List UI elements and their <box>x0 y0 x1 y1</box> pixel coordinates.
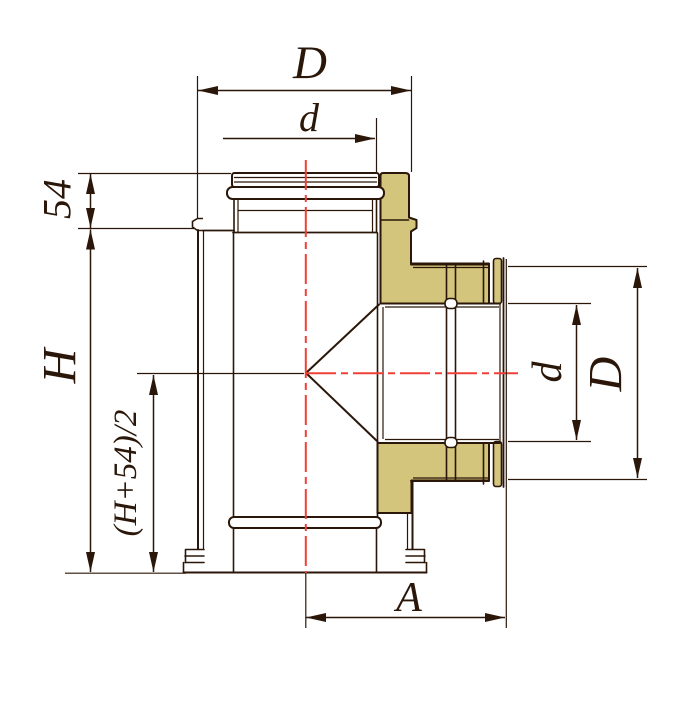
arrow-54-top <box>86 174 95 194</box>
label-branch-axis-height: (H+54)/2 <box>108 410 144 537</box>
chimney-tee-drawing: D d 54 H (H+54)/2 A d D <box>0 0 700 700</box>
label-collar-height: 54 <box>35 179 80 219</box>
insulation-upper <box>381 173 490 304</box>
arrow-H-bottom <box>86 552 95 572</box>
arrow-half-height-top <box>149 375 158 395</box>
branch-socket-bead-cap-bottom <box>445 438 457 448</box>
arrow-H-top <box>86 230 95 250</box>
label-branch-inner-diameter: d <box>525 361 571 383</box>
arrow-half-height-bottom <box>149 552 158 572</box>
casing-top-rim-left <box>193 219 204 231</box>
arrow-A-left <box>306 613 326 622</box>
arrow-D-right <box>391 86 411 95</box>
arrow-D-left <box>198 86 218 95</box>
arrow-d-right <box>355 134 375 143</box>
technical-drawing-canvas: D d 54 H (H+54)/2 A d D <box>0 0 700 700</box>
arrow-54-bottom <box>86 208 95 228</box>
label-inner-diameter-top: d <box>299 95 320 140</box>
branch-cone-upper-edge <box>306 305 379 374</box>
label-branch-length: A <box>393 575 422 621</box>
branch-cone-lower-edge <box>306 373 378 442</box>
arrow-branch-D-top <box>633 268 642 288</box>
arrow-branch-d-top <box>572 305 581 325</box>
branch-socket-bead-cap-top <box>445 299 457 309</box>
arrow-branch-d-bottom <box>572 420 581 440</box>
branch-end-ring-upper <box>494 259 502 304</box>
arrow-A-right <box>485 613 505 622</box>
branch-end-ring-lower <box>494 442 502 487</box>
label-branch-outer-diameter: D <box>580 357 633 393</box>
arrow-branch-D-bottom <box>633 458 642 478</box>
dimensions: D d 54 H (H+54)/2 A d D <box>34 37 648 628</box>
label-outer-diameter-top: D <box>292 37 327 89</box>
label-total-height: H <box>34 346 87 384</box>
